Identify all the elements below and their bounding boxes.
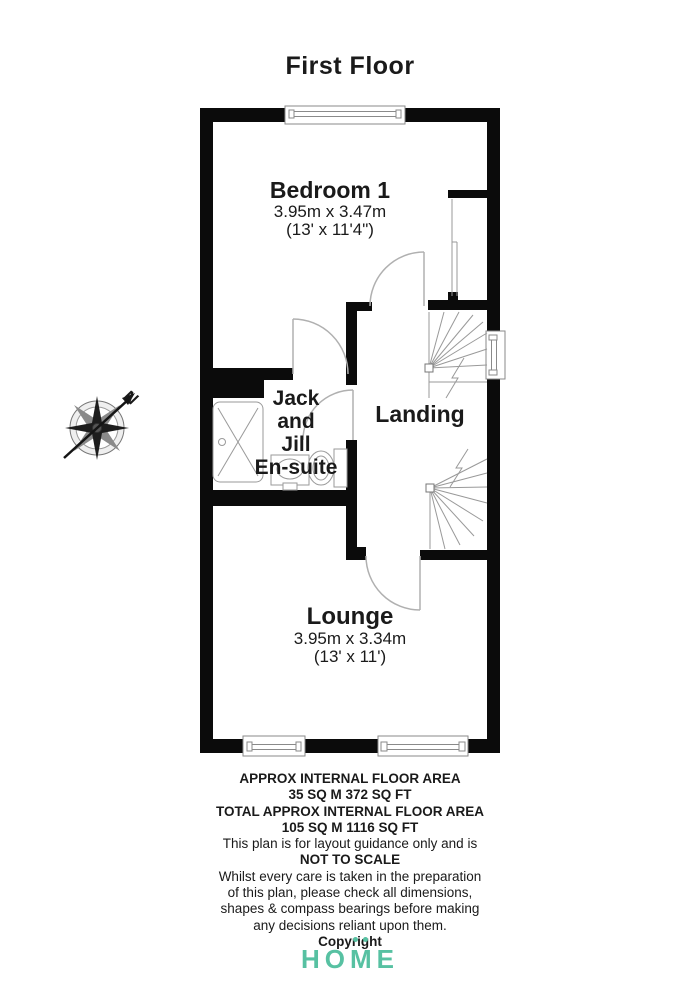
disclaimer-line: Whilst every care is taken in the prepar… [175,869,525,885]
window-right [486,331,505,379]
disclaimer-line: TOTAL APPROX INTERNAL FLOOR AREA [175,804,525,820]
ensuite-name-line4: En-suite [221,456,371,479]
ensuite-name-line3: Jill [221,433,371,456]
window-bottom-right [378,736,468,756]
wall-landing-top [428,300,487,310]
stairs-upper [425,312,487,398]
wall-bottom-2 [305,739,378,753]
door-bedroom [370,252,424,306]
wall-bottom-3 [468,739,500,753]
bedroom-name: Bedroom 1 [230,178,430,203]
wall-cupboard-stub [448,190,487,198]
wall-landing-bottom [420,550,487,560]
disclaimer-line: of this plan, please check all dimension… [175,885,525,901]
home-logo: HOME [301,944,399,975]
wall-top-right [405,108,500,122]
bedroom-label: Bedroom 1 3.95m x 3.47m (13' x 11'4") [230,178,430,239]
disclaimer-line: This plan is for layout guidance only an… [175,836,525,852]
wall-right-upper [487,108,500,333]
home-logo-text: HOME [301,944,399,974]
home-logo-dots [353,937,358,942]
wall-bottom-1 [200,739,243,753]
wall-bedroom-ensuite-divider [200,368,293,380]
lounge-size-metric: 3.95m x 3.34m [250,630,450,648]
disclaimer-line: 35 SQ M 372 SQ FT [175,787,525,803]
door-ensuite-from-bedroom [293,319,348,374]
page-title: First Floor [175,52,525,81]
disclaimer: APPROX INTERNAL FLOOR AREA 35 SQ M 372 S… [175,771,525,950]
window-bottom-left [243,736,305,756]
disclaimer-line: 105 SQ M 1116 SQ FT [175,820,525,836]
wall-left [200,108,213,753]
disclaimer-line: any decisions reliant upon them. [175,918,525,934]
wall-right-lower [487,377,500,753]
lounge-label: Lounge 3.95m x 3.34m (13' x 11') [250,604,450,666]
logo-row: HOME [0,944,700,975]
cupboard-door [452,199,457,296]
landing-label: Landing [345,401,495,428]
wall-lounge-stub [346,547,366,560]
bedroom-size-metric: 3.95m x 3.47m [230,203,430,221]
wall-ensuite-bottom [200,490,346,506]
disclaimer-line: shapes & compass bearings before making [175,901,525,917]
lounge-name: Lounge [250,604,450,630]
bedroom-size-imperial: (13' x 11'4") [230,221,430,239]
stairs-lower [426,449,487,549]
disclaimer-line: NOT TO SCALE [175,852,525,868]
door-lounge [366,556,420,610]
window-top [285,106,405,124]
lounge-size-imperial: (13' x 11') [250,648,450,666]
floorplan-page: First Floor N Bedroom 1 3.95m x 3.47m (1… [0,0,700,990]
disclaimer-line: APPROX INTERNAL FLOOR AREA [175,771,525,787]
